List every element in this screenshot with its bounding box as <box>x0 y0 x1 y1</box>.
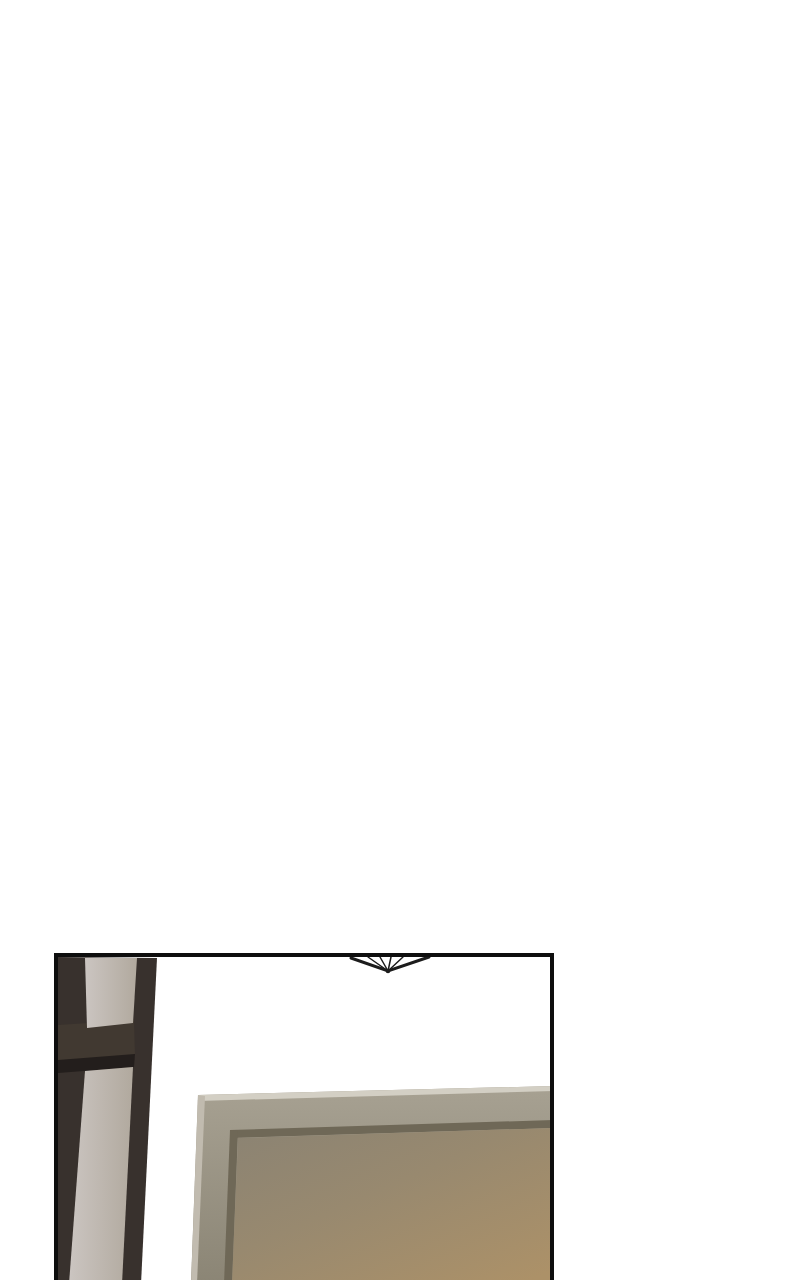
ornament-tip-dot <box>386 969 391 974</box>
comic-page <box>0 0 800 1280</box>
door-inner-panel <box>232 1128 553 1280</box>
partition-pane-upper <box>85 958 137 1028</box>
ceiling-ornament-icon <box>351 957 429 971</box>
comic-panel <box>54 953 554 1280</box>
scene-svg <box>54 953 554 1280</box>
